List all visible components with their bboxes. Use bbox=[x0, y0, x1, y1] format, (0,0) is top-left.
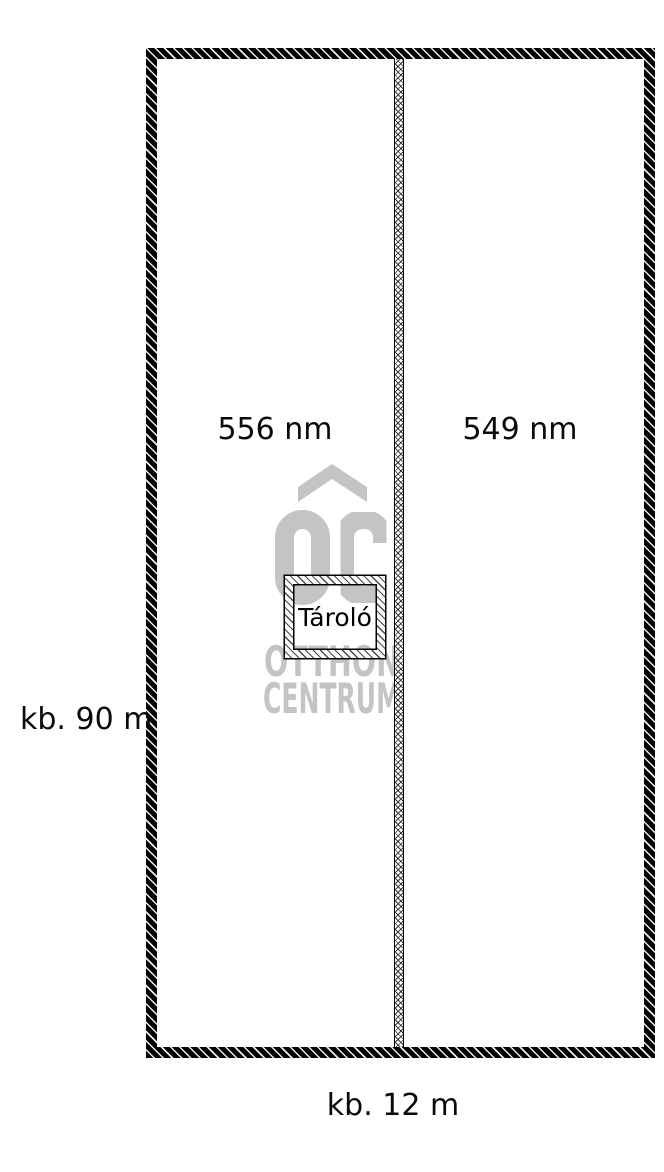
storage-building-outline: Tároló bbox=[285, 576, 385, 658]
right-parcel-area-label: 549 nm bbox=[435, 412, 605, 447]
parcel-divider-wall bbox=[394, 59, 404, 1047]
left-parcel-area-label: 556 nm bbox=[190, 412, 360, 447]
roof-chevron-icon bbox=[298, 464, 367, 502]
plot-width-dimension-label: kb. 12 m bbox=[313, 1088, 473, 1123]
plot-height-dimension-label: kb. 90 m bbox=[20, 702, 152, 737]
floor-plan-canvas: OTTHON CENTRUM Tároló 556 nm 549 nm kb. … bbox=[0, 0, 664, 1172]
watermark-brand-line2: CENTRUM bbox=[263, 674, 401, 720]
storage-building-label: Tároló bbox=[285, 576, 385, 658]
